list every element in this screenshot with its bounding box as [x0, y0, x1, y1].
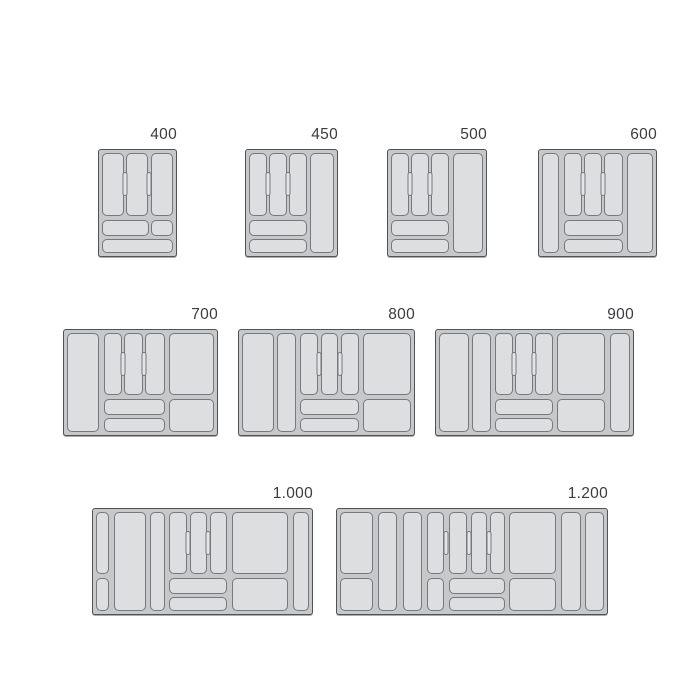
tray-compartment — [124, 333, 142, 395]
tray-compartment — [104, 418, 165, 432]
tray-inner-area — [249, 153, 334, 253]
cutlery-tray-1200: 1.200 — [336, 508, 608, 615]
tray-inner-area — [242, 333, 411, 432]
knife-slot-notch — [186, 531, 191, 555]
tray-compartment — [249, 220, 307, 236]
tray-compartment — [249, 153, 267, 216]
tray-compartment — [232, 578, 287, 611]
tray-size-label: 1.000 — [273, 484, 313, 504]
tray-compartment — [564, 220, 623, 236]
tray-size-label: 700 — [191, 305, 218, 325]
tray-compartment — [439, 333, 469, 432]
cutlery-tray-size-diagram: 4004505006007008009001.0001.200 — [0, 0, 700, 700]
tray-size-label: 400 — [150, 125, 177, 145]
tray-compartment — [96, 578, 109, 611]
tray-compartment — [495, 399, 552, 414]
tray-compartment — [363, 399, 411, 432]
tray-compartment — [495, 333, 512, 395]
tray-compartment — [515, 333, 532, 395]
tray-compartment — [190, 512, 207, 574]
tray-compartment — [169, 578, 227, 593]
tray-compartment — [300, 333, 318, 395]
tray-compartment — [363, 333, 411, 395]
tray-inner-area — [67, 333, 214, 432]
knife-slot-notch — [121, 352, 126, 376]
tray-inner-area — [542, 153, 653, 253]
tray-compartment — [403, 512, 422, 611]
tray-compartment — [490, 512, 505, 574]
tray-compartment — [378, 512, 397, 611]
tray-compartment — [293, 512, 309, 611]
tray-size-label: 900 — [607, 305, 634, 325]
tray-compartment — [391, 153, 409, 216]
tray-compartment — [564, 153, 582, 216]
tray-compartment — [509, 578, 556, 611]
tray-compartment — [557, 399, 605, 432]
tray-compartment — [341, 333, 359, 395]
tray-compartment — [449, 578, 505, 593]
tray-compartment — [604, 153, 623, 216]
tray-compartment — [391, 220, 449, 236]
knife-slot-notch — [147, 172, 152, 196]
tray-compartment — [427, 578, 444, 611]
tray-compartment — [104, 399, 165, 414]
tray-compartment — [427, 512, 444, 574]
tray-inner-area — [96, 512, 309, 611]
tray-compartment — [610, 333, 630, 432]
tray-compartment — [472, 333, 491, 432]
knife-slot-notch — [511, 352, 516, 376]
tray-size-label: 450 — [311, 125, 338, 145]
tray-compartment — [310, 153, 334, 253]
knife-slot-notch — [581, 172, 586, 196]
knife-slot-notch — [141, 352, 146, 376]
knife-slot-notch — [337, 352, 342, 376]
tray-compartment — [300, 418, 358, 432]
tray-compartment — [289, 153, 307, 216]
tray-compartment — [169, 512, 186, 574]
tray-compartment — [411, 153, 429, 216]
tray-compartment — [242, 333, 274, 432]
tray-compartment — [300, 399, 358, 414]
tray-compartment — [151, 220, 173, 236]
tray-compartment — [453, 153, 483, 253]
cutlery-tray-900: 900 — [435, 329, 634, 436]
tray-size-label: 800 — [388, 305, 415, 325]
tray-compartment — [151, 153, 173, 216]
tray-compartment — [169, 333, 214, 395]
tray-compartment — [542, 153, 559, 253]
tray-size-label: 500 — [460, 125, 487, 145]
tray-compartment — [340, 512, 373, 574]
tray-compartment — [321, 333, 339, 395]
tray-compartment — [126, 153, 148, 216]
tray-compartment — [102, 220, 149, 236]
tray-compartment — [150, 512, 165, 611]
tray-compartment — [169, 399, 214, 432]
cutlery-tray-600: 600 — [538, 149, 657, 257]
tray-size-label: 600 — [630, 125, 657, 145]
tray-inner-area — [102, 153, 173, 253]
tray-compartment — [169, 597, 227, 611]
knife-slot-notch — [408, 172, 413, 196]
knife-slot-notch — [428, 172, 433, 196]
tray-compartment — [104, 333, 122, 395]
tray-compartment — [585, 512, 604, 611]
cutlery-tray-400: 400 — [98, 149, 177, 257]
knife-slot-notch — [123, 172, 128, 196]
tray-compartment — [249, 239, 307, 254]
tray-compartment — [67, 333, 99, 432]
tray-compartment — [449, 597, 505, 611]
cutlery-tray-500: 500 — [387, 149, 487, 257]
cutlery-tray-800: 800 — [238, 329, 415, 436]
knife-slot-notch — [601, 172, 606, 196]
tray-compartment — [391, 239, 449, 254]
tray-compartment — [509, 512, 556, 574]
cutlery-tray-1000: 1.000 — [92, 508, 313, 615]
tray-compartment — [232, 512, 287, 574]
knife-slot-notch — [265, 172, 270, 196]
tray-compartment — [269, 153, 287, 216]
tray-compartment — [471, 512, 486, 574]
knife-slot-notch — [532, 352, 537, 376]
tray-compartment — [102, 153, 124, 216]
tray-compartment — [449, 512, 467, 574]
knife-slot-notch — [467, 531, 472, 555]
knife-slot-notch — [486, 531, 491, 555]
tray-inner-area — [391, 153, 483, 253]
tray-compartment — [96, 512, 109, 574]
tray-compartment — [114, 512, 146, 611]
tray-compartment — [561, 512, 581, 611]
knife-slot-notch — [285, 172, 290, 196]
tray-compartment — [431, 153, 449, 216]
knife-slot-notch — [444, 531, 449, 555]
cutlery-tray-700: 700 — [63, 329, 218, 436]
tray-compartment — [557, 333, 605, 395]
tray-size-label: 1.200 — [568, 484, 608, 504]
tray-compartment — [495, 418, 552, 432]
tray-compartment — [277, 333, 296, 432]
cutlery-tray-450: 450 — [245, 149, 338, 257]
tray-inner-area — [340, 512, 604, 611]
tray-compartment — [102, 239, 173, 254]
tray-compartment — [564, 239, 623, 254]
knife-slot-notch — [317, 352, 322, 376]
tray-compartment — [210, 512, 227, 574]
knife-slot-notch — [206, 531, 211, 555]
tray-compartment — [340, 578, 373, 611]
tray-compartment — [584, 153, 602, 216]
tray-compartment — [535, 333, 552, 395]
tray-compartment — [145, 333, 165, 395]
tray-inner-area — [439, 333, 630, 432]
tray-compartment — [627, 153, 653, 253]
